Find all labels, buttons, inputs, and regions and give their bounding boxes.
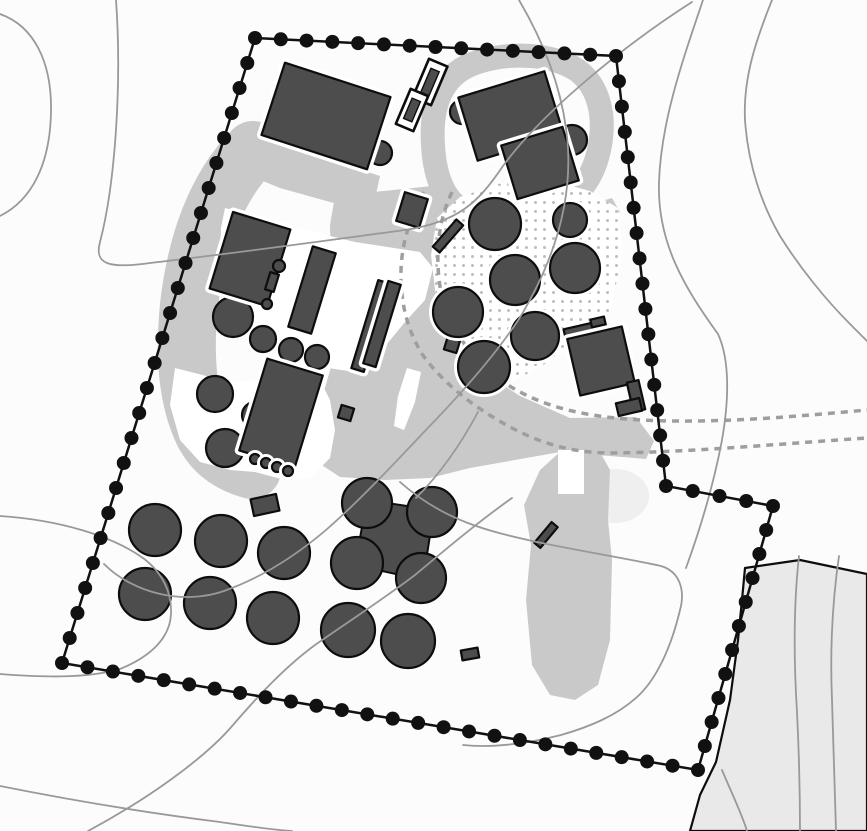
- site-boundary-dot: [766, 499, 780, 513]
- tank-west-3: [279, 338, 303, 362]
- site-boundary-dot: [532, 45, 546, 59]
- site-boundary-dot: [351, 36, 365, 50]
- site-boundary-dot: [163, 306, 177, 320]
- site-boundary-dot: [155, 331, 169, 345]
- site-boundary-dot: [70, 606, 84, 620]
- tank-stipple-5: [433, 287, 483, 337]
- site-boundary-dot: [739, 595, 753, 609]
- site-boundary-dot: [233, 686, 247, 700]
- building-east-square: [567, 326, 635, 395]
- site-boundary-dot: [627, 201, 641, 215]
- site-boundary-dot: [666, 759, 680, 773]
- site-boundary-dot: [225, 106, 239, 120]
- site-boundary-dot: [759, 523, 773, 537]
- tank-west-2: [250, 326, 276, 352]
- site-boundary-dot: [437, 720, 451, 734]
- site-boundary-dot: [644, 353, 658, 367]
- site-boundary-dot: [480, 43, 494, 57]
- site-boundary-dot: [360, 707, 374, 721]
- site-boundary-dot: [633, 251, 647, 265]
- site-boundary-dot: [506, 44, 520, 58]
- site-boundary-dot: [612, 74, 626, 88]
- site-boundary-dot: [718, 667, 732, 681]
- site-boundary-dot: [635, 277, 649, 291]
- site-plan-map: [0, 0, 867, 831]
- site-boundary-dot: [300, 34, 314, 48]
- site-boundary-dot: [653, 428, 667, 442]
- site-boundary-dot: [557, 46, 571, 60]
- site-boundary-dot: [101, 506, 115, 520]
- site-boundary-dot: [538, 737, 552, 751]
- site-boundary-dot: [462, 724, 476, 738]
- tank-farm-9: [331, 537, 383, 589]
- site-boundary-dot: [615, 750, 629, 764]
- tank-farm-11: [321, 603, 375, 657]
- site-boundary-dot: [656, 454, 670, 468]
- site-boundary-dot: [124, 431, 138, 445]
- site-boundary-dot: [117, 456, 131, 470]
- site-boundary-dot: [621, 150, 635, 164]
- site-boundary-dot: [132, 406, 146, 420]
- site-boundary-dot: [171, 281, 185, 295]
- site-boundary-dot: [686, 484, 700, 498]
- tank-stipple-1: [469, 198, 521, 250]
- site-boundary-dot: [55, 656, 69, 670]
- map-canvas: [0, 0, 867, 831]
- site-boundary-dot: [513, 733, 527, 747]
- site-boundary-dot: [403, 39, 417, 53]
- site-boundary-dot: [284, 695, 298, 709]
- site-boundary-dot: [618, 125, 632, 139]
- site-boundary-dot: [659, 479, 673, 493]
- site-boundary-dot: [140, 381, 154, 395]
- silo-small-4: [283, 466, 293, 476]
- tank-west-4: [305, 345, 329, 369]
- site-boundary-dot: [615, 100, 629, 114]
- site-boundary-dot: [63, 631, 77, 645]
- tank-farm-7: [342, 478, 392, 528]
- site-boundary-dot: [624, 175, 638, 189]
- site-boundary-dot: [691, 763, 705, 777]
- tank-farm-12: [381, 614, 435, 668]
- site-boundary-dot: [739, 494, 753, 508]
- site-boundary-dot: [705, 715, 719, 729]
- site-boundary-dot: [638, 302, 652, 316]
- tank-farm-5: [184, 577, 236, 629]
- tank-farm-2: [195, 515, 247, 567]
- site-boundary-dot: [233, 81, 247, 95]
- shed-small-plaza: [338, 405, 354, 421]
- site-boundary-dot: [641, 327, 655, 341]
- site-boundary-dot: [487, 729, 501, 743]
- site-boundary-dot: [106, 665, 120, 679]
- site-boundary-dot: [589, 746, 603, 760]
- site-boundary-dot: [217, 131, 231, 145]
- site-boundary-dot: [240, 56, 254, 70]
- site-boundary-dot: [309, 699, 323, 713]
- site-boundary-dot: [386, 712, 400, 726]
- site-boundary-dot: [630, 226, 644, 240]
- site-boundary-dot: [86, 556, 100, 570]
- site-boundary-dot: [640, 754, 654, 768]
- site-boundary-dot: [698, 739, 712, 753]
- site-boundary-dot: [80, 660, 94, 674]
- site-boundary-dot: [377, 37, 391, 51]
- site-boundary-dot: [148, 356, 162, 370]
- site-boundary-dot: [259, 690, 273, 704]
- site-boundary-dot: [711, 691, 725, 705]
- site-boundary-dot: [109, 481, 123, 495]
- tank-farm-10: [396, 553, 446, 603]
- white-notch-apron: [558, 450, 584, 494]
- tank-stipple-3: [490, 255, 540, 305]
- site-boundary-dot: [209, 156, 223, 170]
- site-boundary-dot: [411, 716, 425, 730]
- building-midwest-vent-circle-1: [273, 260, 285, 272]
- site-boundary-dot: [208, 682, 222, 696]
- site-boundary-dot: [647, 378, 661, 392]
- site-boundary-dot: [157, 673, 171, 687]
- site-boundary-dot: [202, 181, 216, 195]
- site-boundary-dot: [713, 489, 727, 503]
- site-boundary-dot: [454, 41, 468, 55]
- site-boundary-dot: [746, 571, 760, 585]
- site-boundary-dot: [752, 547, 766, 561]
- site-boundary-dot: [650, 403, 664, 417]
- site-boundary-dot: [78, 581, 92, 595]
- site-boundary-dot: [94, 531, 108, 545]
- site-boundary-dot: [186, 231, 200, 245]
- site-boundary-dot: [194, 206, 208, 220]
- site-boundary-dot: [583, 48, 597, 62]
- site-boundary-dot: [325, 35, 339, 49]
- tank-west-5: [197, 376, 233, 412]
- tank-farm-6: [247, 592, 299, 644]
- shed-small-south: [461, 648, 479, 661]
- site-boundary-dot: [335, 703, 349, 717]
- site-boundary-dot: [609, 49, 623, 63]
- site-boundary-dot: [725, 643, 739, 657]
- site-boundary-dot: [182, 677, 196, 691]
- building-east-nub: [590, 317, 605, 328]
- site-boundary-dot: [274, 32, 288, 46]
- building-midwest-vent-circle-2: [262, 299, 272, 309]
- site-boundary-dot: [564, 742, 578, 756]
- site-boundary-dot: [732, 619, 746, 633]
- tank-stipple-4: [550, 243, 600, 293]
- site-boundary-dot: [179, 256, 193, 270]
- tank-farm-1: [129, 504, 181, 556]
- site-boundary-dot: [131, 669, 145, 683]
- site-boundary-dot: [248, 31, 262, 45]
- site-boundary-dot: [429, 40, 443, 54]
